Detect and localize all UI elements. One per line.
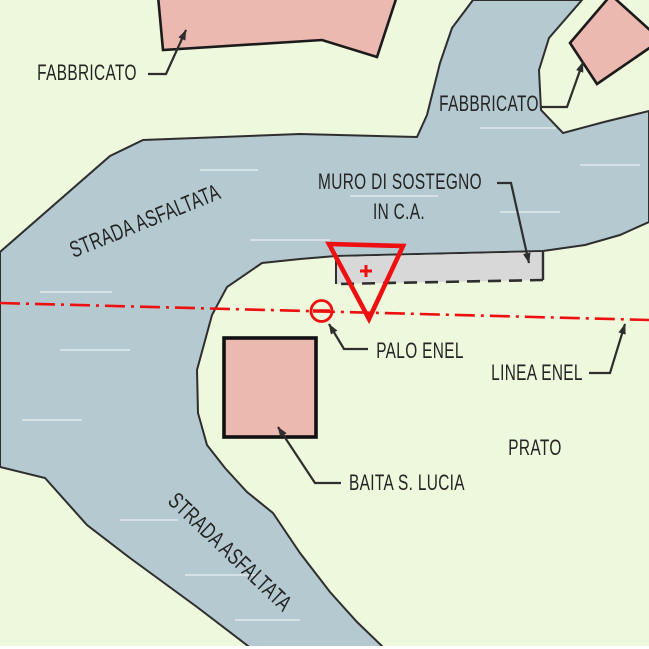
label-baita-s-lucia: BAITA S. LUCIA: [349, 472, 465, 494]
label-prato: PRATO: [508, 437, 561, 459]
label-palo-enel: PALO ENEL: [376, 340, 464, 362]
baita-building: [224, 338, 316, 437]
site-plan-canvas: [0, 0, 649, 649]
label-muro-line2: IN C.A.: [373, 201, 425, 223]
label-muro-line1: MURO DI SOSTEGNO: [318, 171, 482, 193]
label-linea-enel: LINEA ENEL: [491, 362, 583, 384]
site-plan: FABBRICATO FABBRICATO STRADA ASFALTATA M…: [0, 0, 649, 649]
label-fabbricato-left: FABBRICATO: [37, 62, 137, 84]
label-fabbricato-right: FABBRICATO: [439, 93, 539, 115]
